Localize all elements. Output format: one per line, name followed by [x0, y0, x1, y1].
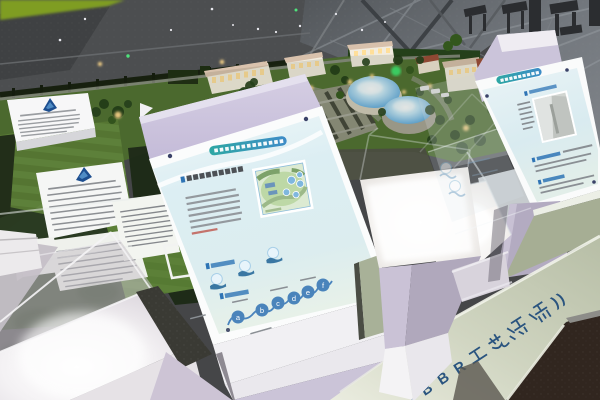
svg-text:b: b — [260, 306, 264, 315]
svg-text:e: e — [306, 288, 310, 297]
svg-text:c: c — [276, 299, 280, 308]
svg-text:d: d — [292, 294, 296, 303]
